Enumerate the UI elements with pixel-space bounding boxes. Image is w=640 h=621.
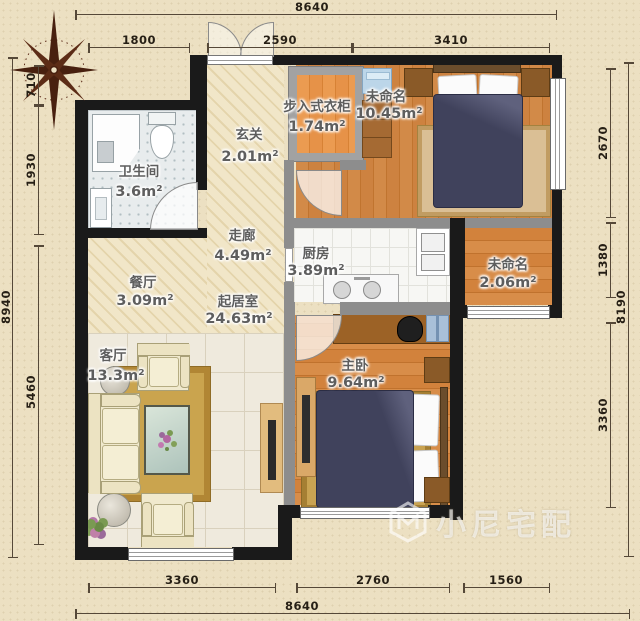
bedroom2-bed [433, 64, 521, 206]
kitchen-sink-counter [416, 228, 450, 276]
room-label-dining-name: 餐厅 [130, 271, 157, 291]
dim-line-bottom-total [75, 613, 630, 614]
dim-label-bottom-2: 2760 [356, 573, 390, 587]
sink-basin [95, 197, 107, 220]
wall-living-bottom-right [232, 547, 290, 560]
nightstand-master-top [424, 357, 450, 383]
armchair-arm [180, 356, 190, 388]
wall-master-right [450, 305, 463, 520]
sofa-arm-top [101, 394, 141, 407]
dim-label-bottom-3: 1560 [489, 573, 523, 587]
nightstand-bedroom2-right [521, 68, 550, 97]
dim-label-right-total: 8190 [614, 290, 628, 324]
burner-right [363, 281, 381, 299]
wall-kitchen-jamb-top [284, 218, 294, 248]
wall-master-left [284, 302, 295, 505]
room-label-master-name: 主卧 [342, 354, 369, 374]
dim-line-bottom-1 [88, 587, 276, 588]
room-label-bedroom2-area: 10.45m² [355, 106, 422, 122]
dim-label-right-2: 1380 [596, 243, 610, 277]
dim-label-top-3: 3410 [434, 33, 468, 47]
entrance-door-leaf-left [208, 22, 242, 57]
sofa-back [89, 394, 101, 494]
bed-headboard [433, 64, 521, 73]
sink-basin-bottom [421, 254, 445, 271]
dim-label-bottom-total: 8640 [285, 599, 319, 613]
shower-head [97, 141, 114, 163]
dim-label-top-total: 8640 [295, 0, 329, 14]
dim-label-left-1: 710 [24, 72, 38, 98]
dim-line-top-2 [207, 47, 352, 48]
wall-bathroom-right [196, 110, 207, 190]
window-balcony [467, 306, 550, 319]
armchair-cushion [153, 504, 183, 535]
room-label-corridor-area: 4.49m² [214, 248, 271, 264]
dim-label-left-3: 5460 [24, 375, 38, 409]
armchair-arm [184, 502, 194, 536]
bathroom-sink [90, 188, 112, 228]
dim-label-top-1: 1800 [122, 33, 156, 47]
wall-balcony-bottom-right [548, 305, 562, 318]
dim-label-bottom-1: 3360 [165, 573, 199, 587]
dim-line-right-total [628, 62, 629, 557]
toilet [148, 112, 176, 162]
living-tv-cabinet [260, 403, 283, 493]
sofa-cushion [102, 408, 139, 444]
floor-plan: 卫生间 3.6m² 玄关 2.01m² 步入式衣柜 1.74m² 未命名 10.… [0, 0, 640, 621]
wall-closet-bottom [340, 160, 366, 170]
wall-balcony-top [465, 218, 552, 228]
room-label-kitchen-area: 3.89m² [287, 263, 344, 279]
room-label-lounge-area: 13.3m² [87, 368, 144, 384]
nightstand-bedroom2-left [404, 68, 433, 97]
armchair-bottom [141, 493, 193, 547]
dim-label-right-1: 2670 [596, 126, 610, 160]
sofa [88, 393, 140, 493]
dim-label-left-2: 1930 [24, 153, 38, 187]
watermark-text: 小尼宅配 [436, 500, 576, 544]
stove-knobs [354, 277, 370, 280]
dim-line-right-2 [610, 222, 611, 298]
wall-right-mid [552, 188, 562, 318]
desk-chair [397, 316, 423, 342]
room-label-livingroom-area: 24.63m² [205, 311, 272, 327]
side-table-round-bottom [97, 493, 131, 527]
master-tv-cabinet [296, 377, 316, 477]
dim-line-top-1 [88, 47, 190, 48]
room-label-entry-area: 2.01m² [221, 149, 278, 165]
window-living-room [128, 548, 234, 561]
room-label-entry-name: 玄关 [236, 123, 263, 143]
room-label-livingroom-name: 起居室 [218, 290, 259, 310]
sink-basin-top [421, 233, 445, 252]
window-bedroom2-right [550, 78, 566, 190]
armchair-arm [142, 502, 152, 536]
sofa-cushion [102, 445, 139, 480]
coffee-table [144, 405, 190, 475]
watermark: 小尼宅配 [388, 500, 576, 544]
wall-top [273, 55, 562, 65]
room-label-bathroom-area: 3.6m² [115, 184, 162, 200]
room-label-balcony-name: 未命名 [488, 253, 529, 273]
master-tv [302, 395, 310, 463]
dim-line-bottom-3 [463, 587, 550, 588]
toilet-bowl [150, 125, 174, 159]
dim-label-left-total: 8940 [0, 290, 13, 324]
armchair-back [138, 344, 190, 356]
bed-duvet [316, 390, 414, 508]
room-label-balcony-area: 2.06m² [479, 275, 536, 291]
dim-line-top-3 [352, 47, 550, 48]
room-label-dining-area: 3.09m² [116, 293, 173, 309]
dim-label-top-2: 2590 [263, 33, 297, 47]
compass-rose-icon [6, 4, 102, 144]
wall-left [75, 100, 88, 560]
armchair-back [142, 536, 194, 548]
room-label-kitchen-name: 厨房 [303, 242, 330, 262]
room-label-corridor-name: 走廊 [229, 224, 256, 244]
living-tv [268, 420, 276, 480]
room-label-master-area: 9.64m² [327, 375, 384, 391]
wall-bathroom-top [88, 100, 207, 110]
wall-right-upper [552, 55, 562, 78]
room-label-closet-name: 步入式衣柜 [283, 95, 351, 115]
dim-label-right-3: 3360 [596, 398, 610, 432]
dim-line-left-2 [38, 105, 39, 235]
armchair-cushion [149, 357, 179, 387]
armchair-top [137, 343, 189, 391]
dim-line-right-3 [610, 322, 611, 508]
shirt-on-desk [426, 315, 449, 342]
wall-kitchen-bottom [340, 302, 450, 315]
dim-line-top-total [75, 14, 557, 15]
wall-kitchen-top [294, 218, 450, 228]
sofa-arm-bottom [101, 481, 141, 494]
room-label-bathroom-name: 卫生间 [119, 160, 160, 180]
wall-balcony-divider [450, 218, 465, 318]
wall-corridor-bedroom2 [284, 160, 294, 218]
dim-line-bottom-2 [296, 587, 450, 588]
dim-line-right-1 [610, 68, 611, 218]
burner-left [333, 281, 351, 299]
room-label-lounge-name: 客厅 [100, 344, 127, 364]
dim-line-left-3 [38, 245, 39, 545]
vanity-mirror [366, 72, 390, 80]
watermark-logo-icon [388, 501, 428, 543]
room-label-closet-area: 1.74m² [288, 119, 345, 135]
entrance-door-threshold [207, 55, 273, 65]
dim-line-left-1 [38, 65, 39, 105]
toilet-tank [148, 112, 176, 125]
bed-duvet [433, 94, 523, 208]
room-label-bedroom2-name: 未命名 [366, 85, 407, 105]
flower-centerpiece [163, 435, 171, 443]
